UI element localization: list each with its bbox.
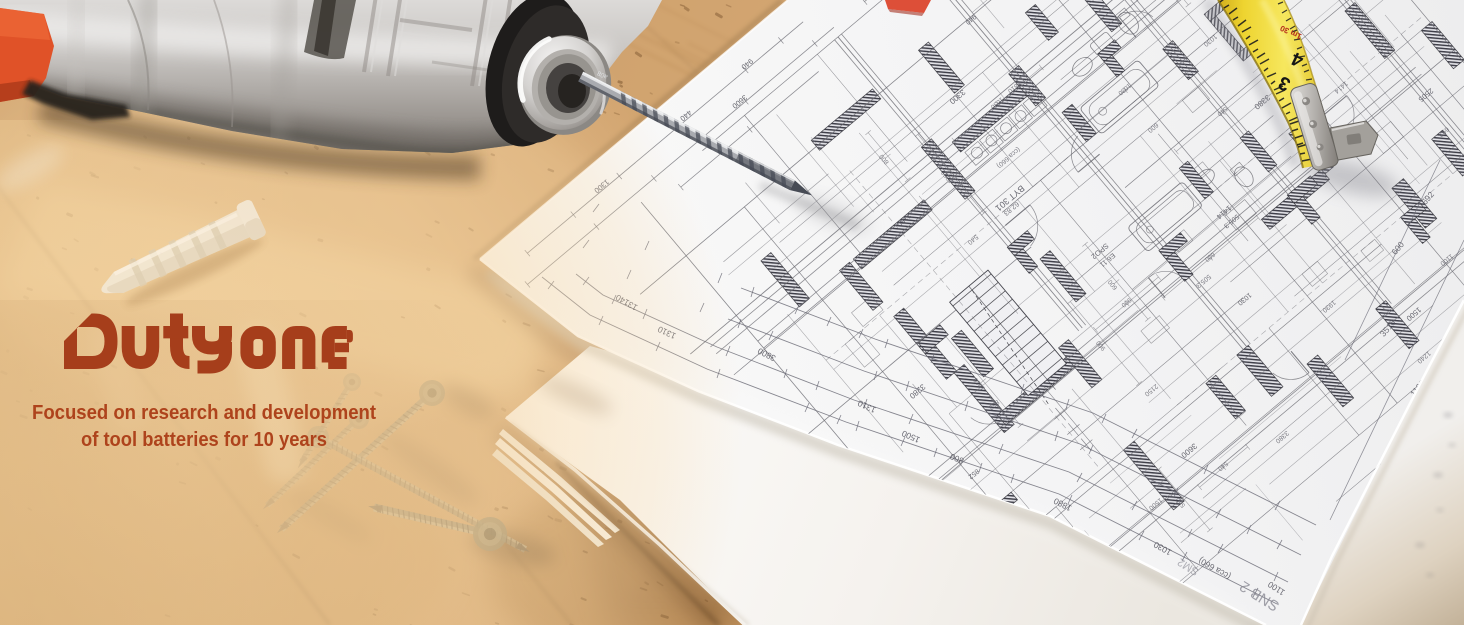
svg-text:Focused on research and develo: Focused on research and development xyxy=(32,401,376,424)
svg-text:of tool batteries for 10 years: of tool batteries for 10 years xyxy=(81,428,327,451)
